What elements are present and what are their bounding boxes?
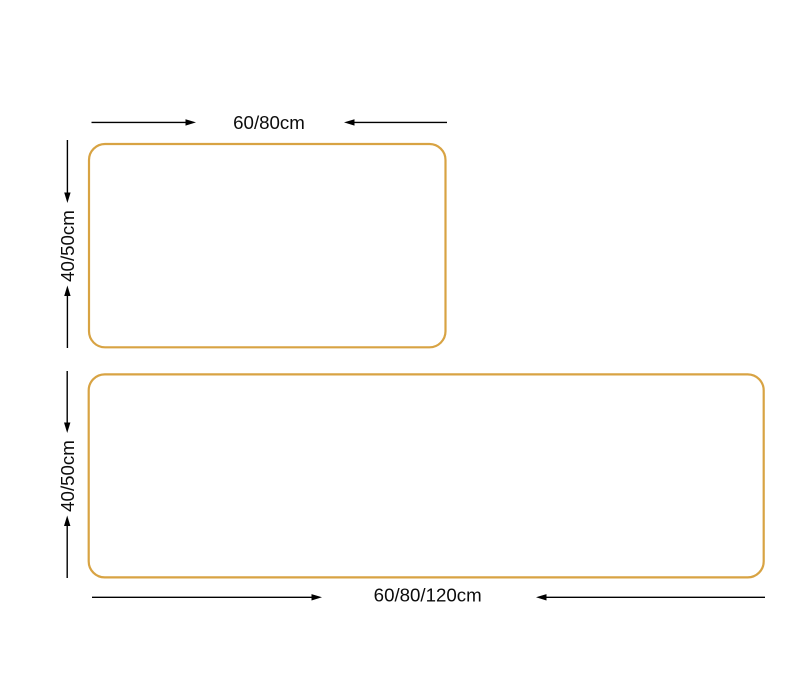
svg-text:60/80/120cm: 60/80/120cm bbox=[374, 584, 482, 605]
svg-text:60/80cm: 60/80cm bbox=[233, 112, 305, 133]
svg-text:40/50cm: 40/50cm bbox=[57, 440, 78, 512]
svg-text:40/50cm: 40/50cm bbox=[57, 210, 78, 282]
